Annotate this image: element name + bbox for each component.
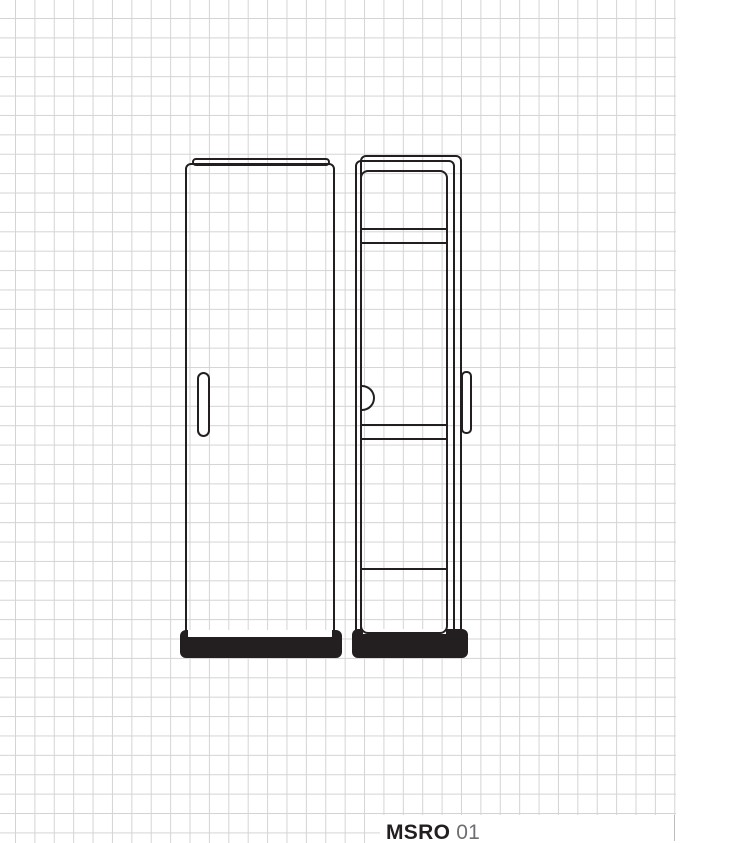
model-variant: 01 [456,821,480,843]
technical-drawing-sheet: MSRO01 [0,0,734,843]
shelf-line [362,424,446,426]
door-handle [197,372,210,437]
shelf-line [362,568,446,570]
grid-paper-background [0,0,676,843]
door-handle-profile [461,371,472,434]
shelf-line [362,242,446,244]
shelf-line [362,228,446,230]
grid-edge-tail-line [674,815,675,841]
model-name: MSRO [386,821,450,843]
model-label: MSRO01 [386,822,480,843]
shelf-line [362,438,446,440]
